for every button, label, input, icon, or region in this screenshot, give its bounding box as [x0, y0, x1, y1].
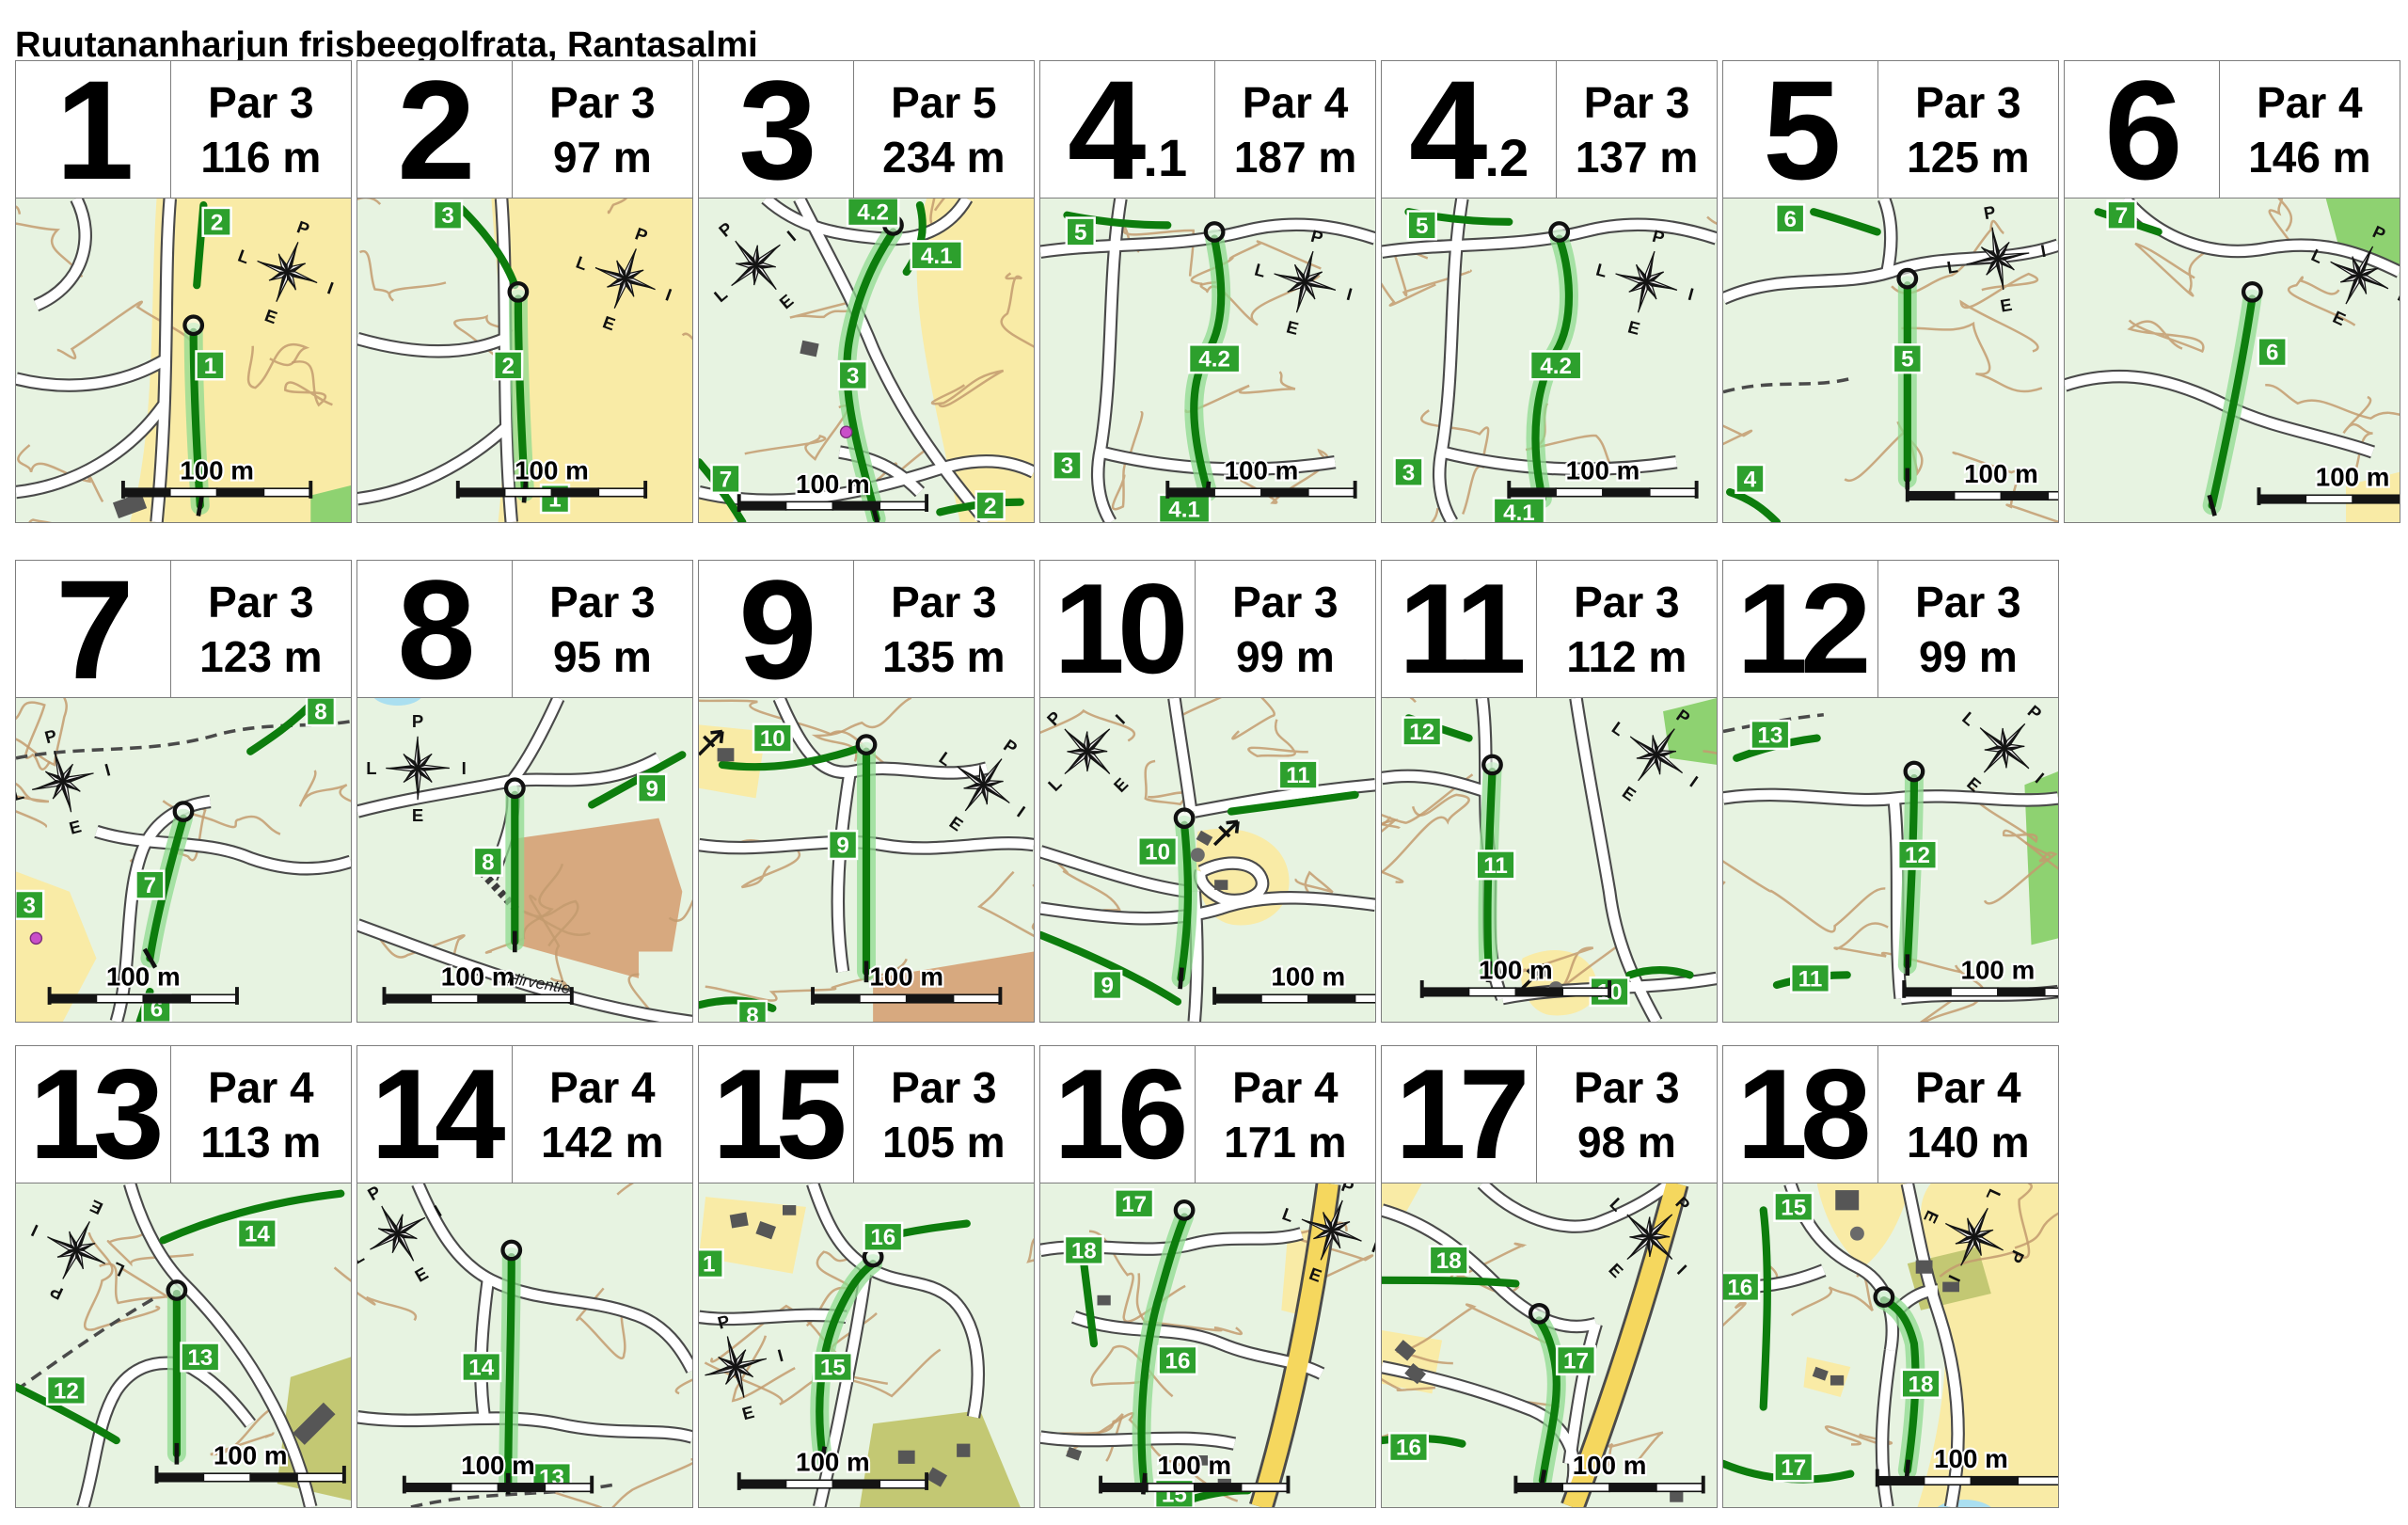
compass-letter: E	[412, 805, 423, 825]
hole-map: 54.234.1100 mPIEL	[1382, 199, 1717, 522]
compass-letter: I	[462, 758, 467, 778]
hole-marker-label: 17	[1121, 1192, 1147, 1217]
scale-bar-segment	[1562, 1484, 1609, 1492]
hole-marker-label: 4.1	[1168, 497, 1200, 522]
scale-bar-segment	[217, 488, 264, 497]
hole-info: Par 3123 m	[171, 561, 351, 697]
hole-number: 1	[16, 61, 171, 198]
hole-distance: 97 m	[553, 135, 652, 179]
hole-marker-label: 8	[482, 850, 494, 875]
scale-bar-segment	[1998, 988, 2045, 996]
hole-tile: 3Par 5234 m4.24.1372100 mPIEL	[698, 60, 1035, 523]
hole-info: Par 399 m	[1196, 561, 1375, 697]
hole-map: 181716100 mPIEL	[1382, 1183, 1717, 1507]
hole-marker-label: 3	[1402, 460, 1415, 485]
hole-par: Par 3	[549, 580, 656, 624]
hole-distance: 146 m	[2248, 135, 2370, 179]
hole-par: Par 3	[891, 1066, 997, 1109]
hole-info: Par 3116 m	[171, 61, 351, 198]
hole-map: 11109100 mPIEL	[1040, 698, 1375, 1022]
hole-tile: 2Par 397 m321100 mPIEL	[356, 60, 693, 523]
hole-number-value: 4	[1409, 65, 1483, 195]
hole-tile: 18Par 4140 m15161817100 mPIEL	[1722, 1045, 2059, 1508]
hole-header: 10Par 399 m	[1040, 561, 1375, 698]
scale-bar-segment	[551, 488, 598, 497]
hole-marker-label: 18	[1909, 1372, 1934, 1397]
hole-info: Par 395 m	[513, 561, 692, 697]
hole-marker-label: 9	[836, 834, 848, 859]
hole-number: 4.2	[1382, 61, 1557, 198]
basket-icon	[1176, 1201, 1194, 1218]
scale-bar-segment	[143, 994, 190, 1003]
hole-number: 6	[2065, 61, 2220, 198]
scale-bar-segment	[203, 1473, 250, 1482]
scale-bar-label: 100 m	[869, 962, 943, 992]
scale-bar-segment	[1556, 488, 1603, 497]
scale-bar-segment	[739, 1480, 786, 1488]
hole-number-value: 4	[1068, 65, 1142, 195]
hole-header: 4.1Par 4187 m	[1040, 61, 1375, 199]
hole-number: 14	[357, 1046, 513, 1183]
hole-par: Par 5	[891, 81, 997, 124]
hole-header: 1Par 3116 m	[16, 61, 351, 199]
hole-marker-label: 13	[1757, 723, 1782, 749]
hole-marker-label: 4.2	[857, 200, 889, 226]
scale-bar-segment	[2258, 495, 2305, 503]
basket-icon	[506, 780, 524, 797]
hole-marker-label: 17	[1563, 1349, 1589, 1374]
building	[957, 1444, 970, 1457]
scale-bar-label: 100 m	[796, 469, 870, 499]
scale-bar-label: 100 m	[1479, 956, 1553, 985]
scale-bar-label: 100 m	[1961, 956, 2036, 985]
hole-number: 4.1	[1040, 61, 1215, 198]
basket-icon	[2243, 283, 2261, 300]
scale-bar-segment	[1908, 492, 1955, 500]
hole-header: 3Par 5234 m	[699, 61, 1034, 199]
hole-number: 15	[699, 1046, 854, 1183]
building	[730, 1212, 749, 1228]
hole-marker-label: 14	[468, 1356, 494, 1381]
hole-distance: 112 m	[1566, 635, 1687, 678]
scale-bar-segment	[860, 994, 907, 1003]
hole-marker-label: 11	[1286, 763, 1310, 788]
hole-number: 10	[1040, 561, 1196, 697]
hole-marker-label: 16	[870, 1225, 895, 1250]
hole-number-value: 16	[1053, 1056, 1180, 1173]
hole-marker-label: 1	[204, 354, 216, 379]
scale-bar-segment	[907, 994, 954, 1003]
building	[1942, 1282, 1959, 1293]
scale-bar-segment	[50, 994, 97, 1003]
hole-info: Par 3105 m	[854, 1046, 1034, 1183]
hole-number-value: 11	[1399, 570, 1519, 688]
hole-info: Par 397 m	[513, 61, 692, 198]
hole-par: Par 3	[891, 580, 997, 624]
scale-bar-label: 100 m	[1225, 456, 1299, 485]
scale-bar-segment	[813, 994, 860, 1003]
scale-bar-segment	[1261, 488, 1308, 497]
scale-bar-label: 100 m	[515, 456, 589, 485]
scale-bar-label: 100 m	[1271, 962, 1345, 992]
scale-bar-segment	[505, 488, 552, 497]
hole-marker-label: 2	[984, 494, 996, 519]
hole-distance: 105 m	[882, 1120, 1005, 1164]
hole-tile: 8Par 395 m89100 mPIELHirventie	[356, 560, 693, 1023]
hole-distance: 99 m	[1236, 635, 1335, 678]
hole-marker-label: 13	[187, 1345, 213, 1371]
scale-bar-segment	[832, 501, 879, 510]
hole-header: 12Par 399 m	[1723, 561, 2058, 698]
scale-bar-segment	[1214, 994, 1261, 1003]
scale-bar-segment	[1925, 1477, 1972, 1485]
basket-icon	[1899, 270, 1917, 287]
basket-icon	[175, 802, 193, 819]
hole-row-1: 1Par 3116 m21100 mPIEL2Par 397 m321100 m…	[15, 60, 2400, 523]
building	[1670, 1492, 1683, 1502]
adjacent-fairway-line	[1764, 1210, 1767, 1406]
hole-header: 17Par 398 m	[1382, 1046, 1717, 1183]
scale-bar-segment	[2305, 495, 2353, 503]
scale-bar-segment	[1877, 1477, 1925, 1485]
hole-info: Par 4140 m	[1878, 1046, 2058, 1183]
scale-bar-segment	[1308, 488, 1355, 497]
hole-tile: 14Par 4142 m1413100 mPIEL	[356, 1045, 693, 1508]
hole-map: 21100 mPIEL	[16, 199, 351, 522]
hole-header: 4.2Par 3137 m	[1382, 61, 1717, 199]
building	[1916, 1261, 1933, 1274]
scale-bar-label: 100 m	[461, 1451, 535, 1480]
hole-map: 654100 mPIEL	[1723, 199, 2058, 522]
scale-bar-segment	[545, 1484, 592, 1492]
hole-number-value: 3	[738, 65, 813, 195]
building	[898, 1451, 915, 1464]
hole-tile: 9Par 3135 m1098100 mPIEL	[698, 560, 1035, 1023]
hole-distance: 99 m	[1919, 635, 2018, 678]
hole-marker-label: 3	[847, 364, 859, 389]
hole-info: Par 4113 m	[171, 1046, 351, 1183]
scale-bar-segment	[1515, 988, 1562, 996]
scale-bar-segment	[2353, 495, 2400, 503]
scale-bar-segment	[1951, 988, 1998, 996]
hole-marker-label: 4.2	[1198, 347, 1230, 373]
hole-map: 141312100 mPIEL	[16, 1183, 351, 1507]
building	[718, 748, 735, 761]
hole-marker-label: 8	[314, 700, 326, 725]
hole-info: Par 3125 m	[1878, 61, 2058, 198]
basket-icon	[1483, 756, 1501, 773]
hole-marker-label: 4.1	[1503, 500, 1535, 522]
hole-marker-label: 5	[1074, 220, 1086, 246]
hole-par: Par 4	[208, 1066, 314, 1109]
hole-distance: 140 m	[1907, 1120, 2029, 1164]
hole-map: 17181615100 mPIEL	[1040, 1183, 1375, 1507]
hole-info: Par 4142 m	[513, 1046, 692, 1183]
scale-bar-segment	[1603, 488, 1650, 497]
hole-info: Par 3135 m	[854, 561, 1034, 697]
hole-header: 8Par 395 m	[357, 561, 692, 698]
hole-tile: 1Par 3116 m21100 mPIEL	[15, 60, 352, 523]
hole-map: 76100 mPIEL	[2065, 199, 2400, 522]
tee-icon	[1180, 968, 1182, 990]
scale-bar-segment	[123, 488, 170, 497]
scale-bar-segment	[1562, 988, 1609, 996]
hole-tile: 5Par 3125 m654100 mPIEL	[1722, 60, 2059, 523]
hole-tile: 4.1Par 4187 m54.234.1100 mPIEL	[1039, 60, 1376, 523]
scale-bar-segment	[1904, 988, 1951, 996]
hole-number: 7	[16, 561, 171, 697]
hole-number: 11	[1382, 561, 1537, 697]
hole-info: Par 399 m	[1878, 561, 2058, 697]
hole-marker-label: 2	[211, 210, 223, 235]
hole-number: 13	[16, 1046, 171, 1183]
hole-tile: 13Par 4113 m141312100 mPIEL	[15, 1045, 352, 1508]
scale-bar-label: 100 m	[106, 962, 181, 992]
hole-header: 9Par 3135 m	[699, 561, 1034, 698]
scale-bar-segment	[404, 1484, 451, 1492]
scale-bar-segment	[431, 994, 478, 1003]
hole-par: Par 4	[1232, 1066, 1339, 1109]
scale-bar-segment	[1355, 994, 1375, 1003]
scale-bar-segment	[478, 994, 525, 1003]
scale-bar-segment	[739, 501, 786, 510]
scale-bar-segment	[879, 1480, 927, 1488]
hole-marker-label: 15	[820, 1356, 846, 1381]
hole-marker-label: 10	[1145, 840, 1170, 866]
scale-bar-segment	[879, 501, 927, 510]
scale-bar-segment	[1515, 1484, 1562, 1492]
hole-map: 8736100 mPIEL	[16, 698, 351, 1022]
hole-distance: 113 m	[200, 1120, 321, 1164]
scale-bar-segment	[157, 1473, 204, 1482]
hole-number: 5	[1723, 61, 1878, 198]
hole-marker-label: 10	[760, 726, 785, 752]
hole-par: Par 3	[1584, 81, 1690, 124]
hole-par: Par 4	[549, 1066, 656, 1109]
hole-marker-label: 3	[24, 893, 36, 918]
hole-number-value: 7	[55, 564, 130, 694]
basket-icon	[1876, 1288, 1893, 1305]
scale-bar-segment	[1656, 1484, 1703, 1492]
building-dot	[1191, 848, 1205, 862]
scale-bar-segment	[1148, 1484, 1195, 1492]
hole-number-value: 5	[1763, 65, 1837, 195]
hole-marker-label: 9	[646, 776, 658, 802]
hole-number-value: 12	[1736, 570, 1863, 688]
hole-tile: 10Par 399 m11109100 mPIEL	[1039, 560, 1376, 1023]
hole-tile: 15Par 3105 m11615100 mPIEL	[698, 1045, 1035, 1508]
hole-marker-label: 6	[1783, 207, 1796, 232]
hole-number-value: 13	[29, 1056, 156, 1173]
hole-tile: 7Par 3123 m8736100 mPIEL	[15, 560, 352, 1023]
hole-number: 3	[699, 61, 854, 198]
hole-marker-label: 8	[746, 1003, 758, 1022]
hole-header: 5Par 3125 m	[1723, 61, 2058, 199]
hole-par: Par 3	[208, 580, 314, 624]
hole-number-suffix: .2	[1484, 127, 1529, 188]
poi-dot	[841, 426, 852, 437]
scale-bar-segment	[384, 994, 431, 1003]
hole-distance: 98 m	[1577, 1120, 1676, 1164]
scale-bar-segment	[458, 488, 505, 497]
hole-header: 18Par 4140 m	[1723, 1046, 2058, 1183]
fairway-line	[508, 1257, 512, 1484]
scale-bar-segment	[250, 1473, 297, 1482]
hole-tile: 4.2Par 3137 m54.234.1100 mPIEL	[1381, 60, 1718, 523]
hole-number: 18	[1723, 1046, 1878, 1183]
hole-map: 54.234.1100 mPIEL	[1040, 199, 1375, 522]
hole-tile: 11Par 3112 m121110100 mPIEL	[1381, 560, 1718, 1023]
hole-marker-label: 5	[1416, 214, 1428, 239]
hole-number: 16	[1040, 1046, 1196, 1183]
hole-marker-label: 5	[1901, 347, 1913, 373]
scale-bar-segment	[786, 501, 833, 510]
basket-icon	[184, 317, 202, 334]
hole-header: 13Par 4113 m	[16, 1046, 351, 1183]
hole-distance: 123 m	[199, 635, 322, 678]
scale-bar-segment	[954, 994, 1001, 1003]
hole-header: 6Par 4146 m	[2065, 61, 2400, 199]
scale-bar-segment	[263, 488, 310, 497]
hole-tile: 17Par 398 m181716100 mPIEL	[1381, 1045, 1718, 1508]
hole-distance: 187 m	[1234, 135, 1356, 179]
hole-tile: 6Par 4146 m76100 mPIEL	[2064, 60, 2400, 523]
hole-par: Par 4	[1243, 81, 1349, 124]
scale-bar-label: 100 m	[1964, 459, 2038, 488]
scale-bar-segment	[1650, 488, 1697, 497]
hole-info: Par 5234 m	[854, 61, 1034, 198]
hole-marker-label: 11	[1798, 966, 1823, 992]
hole-header: 2Par 397 m	[357, 61, 692, 199]
hole-par: Par 3	[549, 81, 656, 124]
hole-marker-label: 3	[441, 203, 453, 229]
hole-marker-label: 4	[1744, 467, 1757, 492]
hole-distance: 137 m	[1576, 135, 1698, 179]
building	[1835, 1190, 1859, 1210]
hole-info: Par 398 m	[1537, 1046, 1717, 1183]
scale-bar-label: 100 m	[796, 1448, 870, 1477]
scale-bar-label: 100 m	[1566, 456, 1640, 485]
scale-bar-segment	[499, 1484, 546, 1492]
scale-bar-label: 100 m	[1573, 1451, 1647, 1480]
hole-number-value: 10	[1053, 570, 1180, 688]
hole-par: Par 3	[1915, 81, 2021, 124]
hole-number-value: 18	[1736, 1056, 1863, 1173]
scale-bar-segment	[1261, 994, 1308, 1003]
hole-header: 7Par 3123 m	[16, 561, 351, 698]
building	[783, 1205, 796, 1215]
scale-bar-segment	[598, 488, 645, 497]
hole-par: Par 3	[1915, 580, 2021, 624]
hole-map: 121110100 mPIEL	[1382, 698, 1717, 1022]
scale-bar-segment	[2045, 988, 2058, 996]
hole-marker-label: 18	[1071, 1238, 1097, 1263]
basket-icon	[503, 1242, 521, 1259]
scale-bar-segment	[1308, 994, 1355, 1003]
hole-marker-label: 12	[54, 1378, 79, 1404]
scale-bar-segment	[2018, 1477, 2058, 1485]
hole-header: 15Par 3105 m	[699, 1046, 1034, 1183]
poi-dot	[30, 932, 41, 944]
hole-map: 15161817100 mPIEL	[1723, 1183, 2058, 1507]
hole-marker-label: 16	[1164, 1349, 1190, 1374]
hole-number: 12	[1723, 561, 1878, 697]
hole-number-value: 2	[397, 65, 471, 195]
hole-map: 4.24.1372100 mPIEL	[699, 199, 1034, 522]
scale-bar-segment	[190, 994, 237, 1003]
scale-bar-label: 100 m	[214, 1441, 288, 1470]
compass-letter: L	[366, 758, 376, 778]
hole-map: 1413100 mPIEL	[357, 1183, 692, 1507]
hole-marker-label: 12	[1905, 843, 1930, 868]
basket-icon	[858, 736, 876, 753]
hole-marker-label: 9	[1101, 974, 1113, 999]
hole-tile: 12Par 399 m131211100 mPIEL	[1722, 560, 2059, 1023]
hole-info: Par 4171 m	[1196, 1046, 1375, 1183]
scale-bar-segment	[832, 1480, 879, 1488]
hole-marker-label: 17	[1781, 1455, 1806, 1481]
hole-number: 2	[357, 61, 513, 198]
basket-icon	[1550, 223, 1568, 240]
hole-marker-label: 14	[245, 1222, 270, 1247]
scale-bar-segment	[1214, 488, 1261, 497]
hole-number-value: 6	[2104, 65, 2178, 195]
hole-distance: 142 m	[541, 1120, 663, 1164]
scale-bar-segment	[1971, 1477, 2018, 1485]
hole-par: Par 4	[1915, 1066, 2021, 1109]
basket-icon	[1906, 763, 1924, 780]
hole-par: Par 3	[1232, 580, 1339, 624]
hole-distance: 171 m	[1224, 1120, 1346, 1164]
building	[1098, 1295, 1111, 1306]
hole-marker-label: 2	[501, 354, 514, 379]
scale-bar-segment	[297, 1473, 344, 1482]
hole-header: 11Par 3112 m	[1382, 561, 1717, 698]
scale-bar-segment	[1101, 1484, 1148, 1492]
scale-bar-segment	[451, 1484, 499, 1492]
scale-bar-segment	[170, 488, 217, 497]
scale-bar-segment	[1422, 988, 1469, 996]
hole-marker-label: 3	[1061, 453, 1073, 479]
hole-info: Par 4187 m	[1215, 61, 1375, 198]
scale-bar-segment	[1955, 492, 2002, 500]
hole-marker-label: 1	[703, 1252, 715, 1278]
hole-marker-label: 7	[720, 467, 732, 492]
scale-bar-label: 100 m	[2316, 463, 2390, 492]
hole-row-2: 7Par 3123 m8736100 mPIEL8Par 395 m89100 …	[15, 560, 2059, 1023]
hole-distance: 125 m	[1907, 135, 2029, 179]
hole-marker-label: 16	[1727, 1275, 1752, 1300]
scale-bar-segment	[786, 1480, 833, 1488]
basket-icon	[1206, 223, 1224, 240]
hole-marker-label: 16	[1396, 1436, 1421, 1461]
hole-marker-label: 18	[1436, 1248, 1462, 1274]
hole-number-value: 14	[371, 1056, 498, 1173]
hole-number-value: 1	[55, 65, 130, 195]
basket-icon	[168, 1281, 186, 1298]
hole-marker-label: 7	[2115, 203, 2128, 229]
hole-marker-label: 15	[1781, 1195, 1806, 1220]
hole-header: 14Par 4142 m	[357, 1046, 692, 1183]
hole-par: Par 3	[208, 81, 314, 124]
scale-bar-segment	[1509, 488, 1556, 497]
scale-bar-segment	[1167, 488, 1214, 497]
hole-number-value: 17	[1395, 1056, 1522, 1173]
hole-par: Par 4	[2257, 81, 2363, 124]
hole-tile: 16Par 4171 m17181615100 mPIEL	[1039, 1045, 1376, 1508]
hole-marker-label: 4.1	[921, 244, 953, 269]
hole-par: Par 3	[1574, 1066, 1680, 1109]
